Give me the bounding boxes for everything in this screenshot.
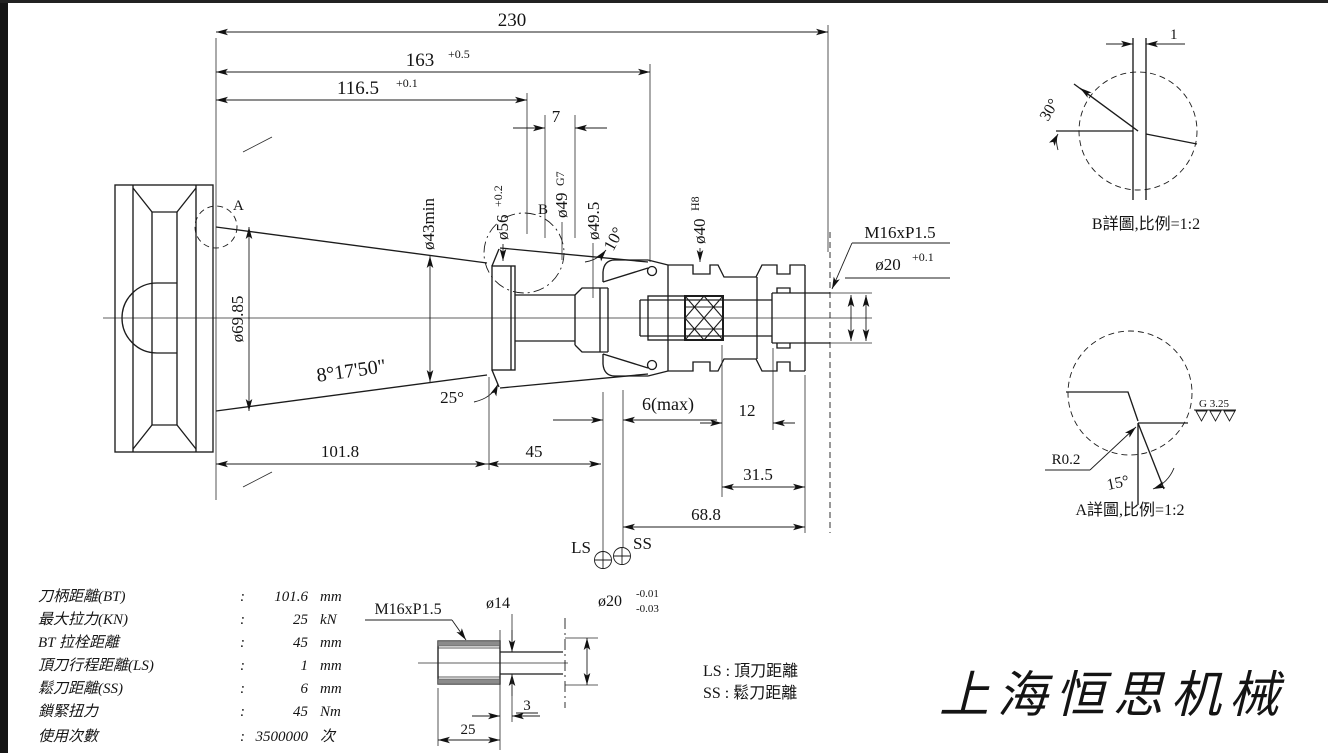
spec-unit: Nm — [319, 704, 341, 720]
spec-colon: : — [240, 681, 245, 697]
detail-b-caption: B詳圖,比例=1:2 — [1092, 215, 1200, 233]
company-name: 上海恒思机械 — [939, 667, 1287, 723]
detail-a-mark: A — [233, 198, 244, 214]
dim-12-text: 12 — [739, 401, 756, 420]
spec-label: 頂刀行程距離(LS) — [38, 657, 154, 674]
dim-45: 45 — [487, 377, 601, 470]
spec-row-4: 鬆刀距離(SS) : 6 mm — [38, 680, 342, 697]
spec-row-6: 使用次數 : 3500000 次 — [38, 728, 337, 745]
callout-20: ø20 +0.1 — [830, 250, 950, 343]
stud-3-text: 3 — [523, 698, 531, 714]
spec-value: 45 — [293, 704, 309, 720]
dim-116-5-text: 116.5 — [337, 78, 379, 99]
taper-angle-text: 8°17'50" — [315, 355, 387, 386]
dim-49-text: ø49 — [552, 193, 571, 219]
dim-56-tol: +0.2 — [491, 185, 505, 207]
dim-7-text: 7 — [552, 107, 561, 126]
dim-68-8-text: 68.8 — [691, 505, 721, 524]
flange-pulley — [115, 185, 213, 452]
spec-row-1: 最大拉力(KN) : 25 kN — [38, 611, 338, 628]
detail-b-angle-text: 30° — [1037, 96, 1063, 124]
dim-31-5: 31.5 — [722, 375, 805, 533]
dim-6max-text: 6(max) — [642, 394, 694, 415]
dim-230-text: 230 — [498, 10, 527, 31]
detail-a-angle-text: 15° — [1105, 473, 1130, 494]
stud-thread — [438, 641, 500, 684]
drawing-sheet: A B — [0, 0, 1328, 753]
detail-a-caption: A詳圖,比例=1:2 — [1075, 501, 1184, 519]
spec-value: 25 — [293, 612, 309, 628]
dim-116-5: 116.5 +0.1 — [216, 76, 527, 234]
stud-14-text: ø14 — [486, 595, 510, 612]
stud-20-tol-upper: -0.01 — [636, 588, 659, 600]
detail-a-circle — [1068, 331, 1192, 455]
dim-56: ø56 +0.2 — [491, 185, 512, 261]
ls-ss-datums: LS SS — [571, 390, 652, 569]
spec-unit: 次 — [320, 728, 337, 745]
spec-label: 鎖緊扭力 — [38, 703, 99, 720]
cad-drawing: A B — [0, 0, 1328, 753]
detail-a-radius-text: R0.2 — [1052, 452, 1081, 468]
taper-cone — [216, 227, 487, 411]
dim-43min-text: ø43min — [419, 198, 438, 250]
spec-unit: mm — [320, 589, 342, 605]
detail-b-view: 1 30° B詳圖,比例=1:2 — [1037, 27, 1200, 233]
spec-label: 刀柄距離(BT) — [38, 588, 126, 605]
callout-20-text: ø20 — [875, 255, 901, 274]
spec-colon: : — [240, 612, 245, 628]
dim-43min: ø43min — [419, 198, 438, 382]
ls-label: LS — [571, 538, 591, 557]
dim-69-85: ø69.85 — [228, 227, 249, 411]
dim-116-5-tol: +0.1 — [396, 76, 418, 90]
spec-unit: mm — [320, 681, 342, 697]
spec-table: 刀柄距離(BT) : 101.6 mm 最大拉力(KN) : 25 kN BT … — [38, 588, 342, 745]
left-border-bar — [0, 0, 8, 753]
stud-m16-text: M16xP1.5 — [374, 601, 441, 618]
spec-value: 45 — [293, 635, 309, 651]
spec-unit: kN — [320, 612, 338, 628]
dim-69-85-text: ø69.85 — [228, 296, 247, 343]
dim-230: 230 — [216, 10, 828, 500]
dim-101-8-text: 101.8 — [321, 442, 359, 461]
dim-25deg-text: 25° — [440, 388, 464, 407]
dim-10deg-text: 10° — [600, 224, 628, 254]
spec-value: 1 — [301, 658, 309, 674]
stud-20-tol-lower: -0.03 — [636, 603, 659, 615]
stud-callout-m16: M16xP1.5 — [365, 601, 466, 640]
spec-colon: : — [240, 658, 245, 674]
roughness-symbol: G 3.25 — [1194, 398, 1236, 421]
callout-20-tol: +0.1 — [912, 250, 934, 264]
dim-40h8: ø40 H8 — [688, 196, 709, 262]
dim-6max: 6(max) — [553, 394, 717, 420]
pull-stud-view: M16xP1.5 ø14 ø20 -0.01 -0.03 3 25 — [365, 588, 659, 750]
spec-colon: : — [240, 635, 245, 651]
spec-row-2: BT 拉栓距離 : 45 mm — [38, 634, 342, 651]
main-view: A B — [103, 10, 950, 569]
spec-row-0: 刀柄距離(BT) : 101.6 mm — [38, 588, 342, 605]
legend-ss: SS : 鬆刀距離 — [703, 683, 797, 702]
spec-unit: mm — [320, 635, 342, 651]
dim-31-5-text: 31.5 — [743, 465, 773, 484]
spec-row-3: 頂刀行程距離(LS) : 1 mm — [38, 657, 342, 674]
dim-40-text: ø40 — [690, 219, 709, 245]
spec-value: 3500000 — [255, 729, 309, 745]
dim-49g7: ø49 G7 — [552, 171, 571, 260]
dim-49-5-text: ø49.5 — [584, 202, 603, 240]
spec-value: 101.6 — [274, 589, 308, 605]
dim-101-8: 101.8 — [216, 442, 487, 464]
spec-unit: mm — [320, 658, 342, 674]
spec-colon: : — [240, 704, 245, 720]
stud-20-text: ø20 — [598, 593, 622, 610]
detail-b-width-text: 1 — [1170, 27, 1178, 43]
spec-colon: : — [240, 589, 245, 605]
spec-value: 6 — [301, 681, 309, 697]
stud-dim-20: ø20 -0.01 -0.03 — [587, 588, 659, 685]
spec-row-5: 鎖緊扭力 : 45 Nm — [38, 703, 341, 720]
spec-colon: : — [240, 729, 245, 745]
dim-45-text: 45 — [526, 442, 543, 461]
dim-40-fit: H8 — [688, 196, 702, 211]
stud-25-text: 25 — [461, 722, 476, 738]
dim-68-8: 68.8 — [623, 505, 805, 527]
callout-m16-text: M16xP1.5 — [864, 223, 935, 242]
top-border-line — [0, 0, 1328, 3]
ss-label: SS — [633, 534, 652, 553]
detail-a-view: R0.2 15° G 3.25 A詳圖,比例=1:2 — [1045, 331, 1236, 519]
spec-label: BT 拉栓距離 — [38, 634, 121, 651]
dim-49-fit: G7 — [553, 171, 567, 186]
dim-163-tol: +0.5 — [448, 47, 470, 61]
detail-b-mark: B — [538, 202, 548, 218]
dim-49-5: ø49.5 — [584, 202, 603, 298]
stud-dim-25: 25 — [438, 688, 500, 746]
spec-label: 鬆刀距離(SS) — [38, 680, 123, 697]
spec-label: 最大拉力(KN) — [38, 611, 128, 628]
dim-163-text: 163 — [406, 50, 435, 71]
ls-ss-legend: LS : 頂刀距離 SS : 鬆刀距離 — [703, 662, 798, 702]
legend-ls: LS : 頂刀距離 — [703, 662, 798, 680]
roughness-text: G 3.25 — [1199, 398, 1229, 410]
dim-56-text: ø56 — [493, 215, 512, 241]
spec-label: 使用次數 — [38, 728, 100, 745]
